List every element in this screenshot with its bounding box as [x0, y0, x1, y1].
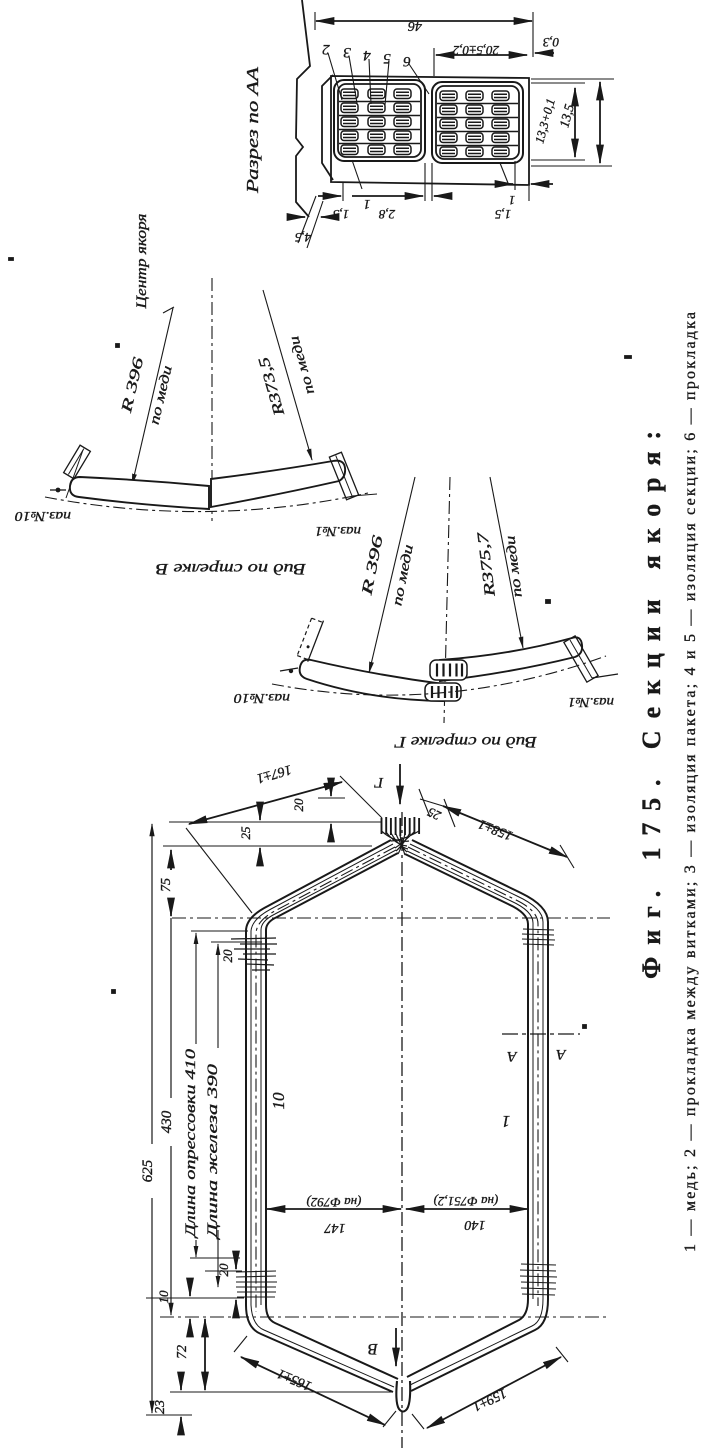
- svg-text:Разрез по АА: Разрез по АА: [243, 66, 262, 194]
- svg-text:Длина опрессовки 410: Длина опрессовки 410: [183, 1048, 199, 1239]
- svg-text:1: 1: [364, 196, 371, 211]
- svg-text:Вид по стрелке Г: Вид по стрелке Г: [394, 733, 537, 750]
- svg-text:625: 625: [140, 1159, 156, 1182]
- svg-text:(на Ф751,2): (на Ф751,2): [434, 1194, 499, 1209]
- svg-text:1: 1: [509, 193, 516, 208]
- svg-text:1,5: 1,5: [332, 207, 349, 222]
- svg-text:10: 10: [156, 1290, 171, 1304]
- svg-text:1,5: 1,5: [494, 207, 511, 222]
- svg-text:паз.№10: паз.№10: [15, 508, 71, 523]
- svg-text:1: 1: [502, 1112, 511, 1131]
- svg-text:Длина железа 390: Длина железа 390: [205, 1063, 221, 1241]
- svg-text:25: 25: [238, 826, 253, 840]
- svg-text:20: 20: [216, 1263, 231, 1277]
- svg-text:Вид по стрелке В: Вид по стрелке В: [156, 560, 306, 577]
- svg-text:140: 140: [465, 1217, 486, 1232]
- svg-text:20: 20: [291, 798, 306, 812]
- svg-text:147: 147: [324, 1220, 346, 1235]
- svg-text:10: 10: [269, 1092, 288, 1110]
- svg-text:Г: Г: [373, 774, 384, 790]
- svg-text:23: 23: [153, 1400, 168, 1414]
- svg-text:6: 6: [403, 53, 411, 69]
- svg-text:0,3: 0,3: [542, 35, 559, 50]
- svg-text:20,5±0,2: 20,5±0,2: [452, 43, 499, 58]
- svg-text:паз.№1: паз.№1: [568, 694, 614, 709]
- svg-text:паз.№10: паз.№10: [234, 690, 290, 705]
- svg-text:паз.№1: паз.№1: [315, 523, 361, 538]
- svg-text:4,5: 4,5: [294, 230, 311, 245]
- svg-text:2,8: 2,8: [378, 207, 395, 222]
- svg-text:1 — медь; 2 — прокладка между: 1 — медь; 2 — прокладка между витками; 3…: [682, 312, 699, 1252]
- svg-text:Центр якоря: Центр якоря: [134, 213, 150, 309]
- svg-text:В: В: [368, 1340, 378, 1357]
- svg-text:А: А: [507, 1048, 518, 1064]
- svg-text:5: 5: [383, 50, 391, 66]
- svg-text:430: 430: [159, 1110, 175, 1133]
- svg-text:3: 3: [343, 44, 352, 60]
- svg-text:А: А: [556, 1046, 567, 1062]
- svg-text:75: 75: [159, 878, 174, 892]
- svg-text:46: 46: [408, 18, 422, 33]
- svg-text:20: 20: [220, 949, 235, 963]
- svg-text:72: 72: [175, 1345, 190, 1359]
- svg-text:(на Ф792): (на Ф792): [307, 1195, 362, 1210]
